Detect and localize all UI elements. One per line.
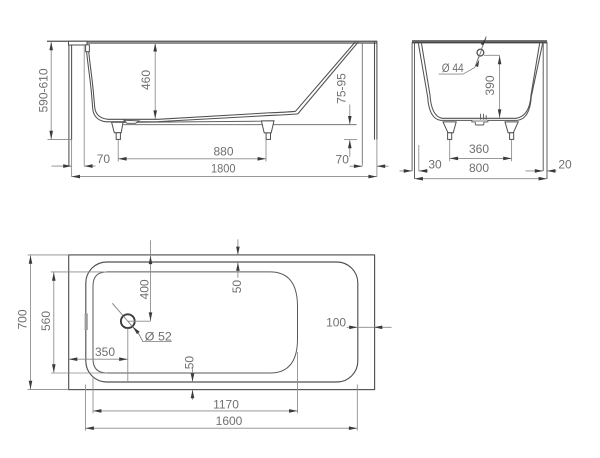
svg-text:1800: 1800 [211, 162, 236, 176]
svg-text:30: 30 [428, 157, 442, 171]
svg-text:590-610: 590-610 [36, 68, 50, 112]
svg-text:Ø 52: Ø 52 [145, 329, 172, 343]
svg-text:1600: 1600 [216, 414, 243, 428]
svg-text:100: 100 [326, 316, 346, 330]
svg-text:800: 800 [469, 161, 489, 175]
svg-text:390: 390 [483, 75, 497, 95]
svg-text:70: 70 [97, 152, 111, 166]
svg-text:700: 700 [16, 309, 30, 329]
svg-text:360: 360 [469, 142, 489, 156]
svg-text:1170: 1170 [213, 397, 239, 411]
svg-text:560: 560 [39, 311, 53, 331]
svg-text:20: 20 [558, 157, 572, 171]
svg-text:75-95: 75-95 [334, 73, 348, 104]
svg-text:50: 50 [183, 356, 197, 370]
svg-text:350: 350 [95, 345, 115, 359]
svg-text:880: 880 [213, 145, 233, 159]
svg-text:400: 400 [137, 279, 151, 299]
svg-text:50: 50 [230, 280, 244, 294]
svg-text:70: 70 [336, 152, 350, 166]
svg-text:Ø 44: Ø 44 [442, 61, 464, 75]
svg-text:460: 460 [139, 70, 153, 90]
